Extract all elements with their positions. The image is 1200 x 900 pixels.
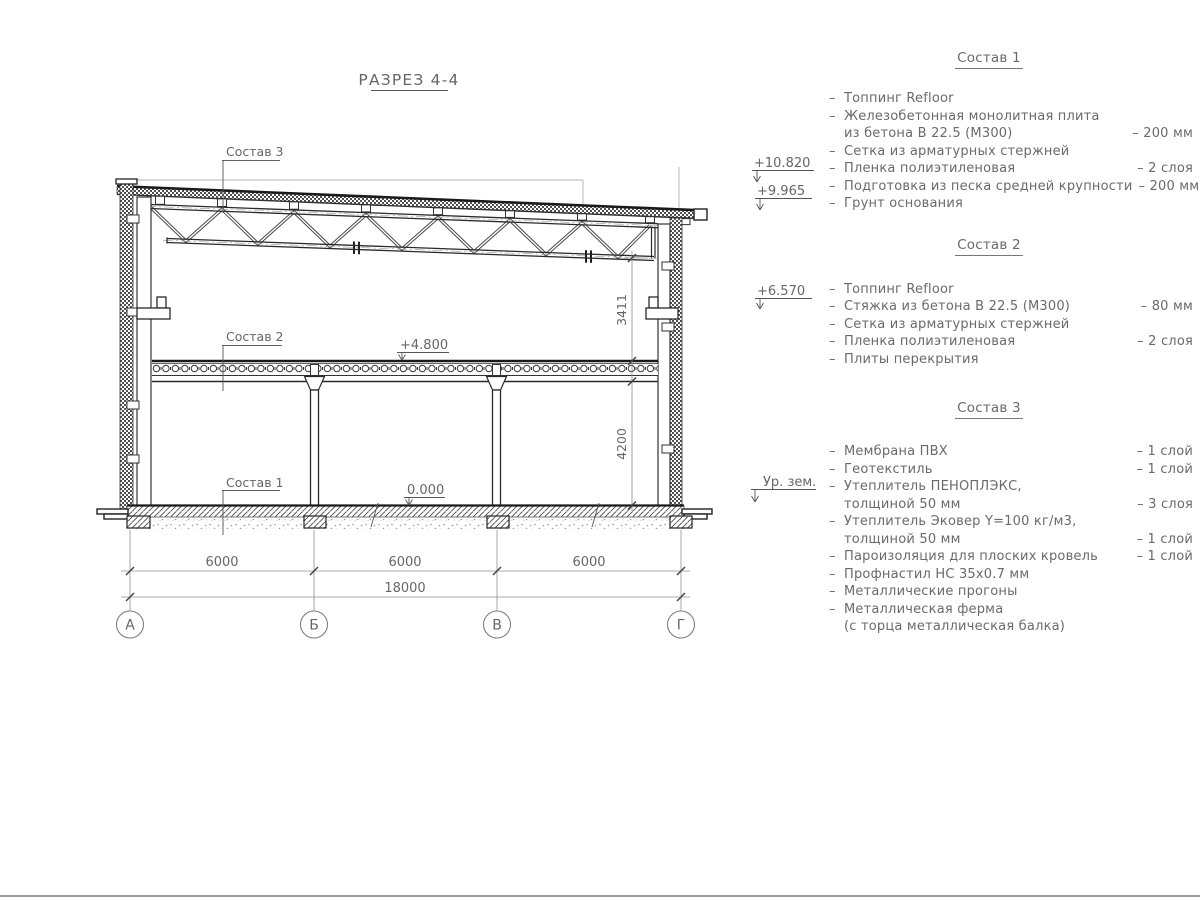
spec-item: –толщиной 50 мм– 3 слоя bbox=[829, 496, 1193, 514]
elevation-parapet: +10.820 bbox=[754, 156, 810, 171]
elevation-ground-label: Ур. зем. bbox=[763, 475, 816, 490]
hollow-core-slabs bbox=[152, 364, 658, 375]
dim-bay2: 6000 bbox=[388, 555, 421, 570]
drawing-title: РАЗРЕЗ 4-4 bbox=[358, 71, 459, 91]
right-bracket-arm bbox=[646, 308, 678, 319]
spec-item: –Металлические прогоны bbox=[829, 583, 1193, 601]
axis-label-b: Б bbox=[309, 618, 319, 634]
elevation-roof-edge: +9.965 bbox=[757, 184, 805, 199]
left-column bbox=[137, 197, 151, 511]
column-capital bbox=[487, 377, 507, 391]
dim-bay1: 6000 bbox=[205, 555, 238, 570]
spec-item: –Грунт основания bbox=[829, 195, 1193, 213]
spec-item: –Пленка полиэтиленовая– 2 слоя bbox=[829, 160, 1193, 178]
composition-callouts: Состав 3 Состав 2 Состав 1 bbox=[222, 144, 283, 535]
spec-item: –Мембрана ПВХ– 1 слой bbox=[829, 443, 1193, 461]
ground-floor bbox=[97, 503, 712, 529]
section-title-text: РАЗРЕЗ 4-4 bbox=[358, 71, 459, 89]
right-wall bbox=[658, 218, 682, 511]
parapet-cap bbox=[116, 179, 137, 184]
callout-sostav2: Состав 2 bbox=[226, 329, 283, 344]
spec-section-sostav3: Состав 3 –Мембрана ПВХ– 1 слой –Геотекст… bbox=[829, 401, 1193, 636]
spec-item: –Утеплитель ПЕНОПЛЭКС, bbox=[829, 478, 1193, 496]
spec-item: –Сетка из арматурных стержней bbox=[829, 143, 1193, 161]
spec-item: –(с торца металлическая балка) bbox=[829, 618, 1193, 636]
dim-bay3: 6000 bbox=[572, 555, 605, 570]
column-v bbox=[493, 390, 501, 516]
right-bracket-stub bbox=[649, 297, 658, 308]
left-bracket-arm bbox=[137, 308, 170, 319]
spec-item: –Утеплитель Эковер Y=100 кг/м3, bbox=[829, 513, 1193, 531]
sheet-bottom-edge bbox=[0, 895, 1200, 897]
ground-slab bbox=[127, 506, 684, 517]
spec-item: –Топпинг Refloor bbox=[829, 90, 1193, 108]
drawing-sheet: РАЗРЕЗ 4-4 bbox=[0, 0, 1200, 900]
spec-item: –Железобетонная монолитная плита bbox=[829, 108, 1193, 126]
axis-label-g: Г bbox=[677, 618, 686, 634]
callout-sostav3: Состав 3 bbox=[226, 144, 283, 159]
column-capital bbox=[305, 377, 325, 391]
spec-item: –Пароизоляция для плоских кровель– 1 сло… bbox=[829, 548, 1193, 566]
truss-end-post bbox=[652, 227, 656, 259]
spec-heading: Состав 2 bbox=[829, 238, 1193, 253]
axis-label-v: В bbox=[492, 618, 502, 634]
spec-item: –Пленка полиэтиленовая– 2 слоя bbox=[829, 333, 1193, 351]
spec-item: –толщиной 50 мм– 1 слой bbox=[829, 531, 1193, 549]
column-b bbox=[311, 390, 319, 516]
dim-total: 18000 bbox=[384, 581, 425, 596]
crane-brackets bbox=[137, 297, 678, 319]
interior-columns bbox=[305, 365, 507, 517]
spec-heading: Состав 1 bbox=[829, 51, 1193, 66]
left-wall bbox=[116, 179, 151, 511]
callout-sostav1: Состав 1 bbox=[226, 475, 283, 490]
dim-floor-clearance: 4200 bbox=[614, 428, 629, 460]
spec-heading: Состав 3 bbox=[829, 401, 1193, 416]
level-arrow-icon bbox=[406, 498, 413, 506]
spec-section-sostav2: Состав 2 –Топпинг Refloor –Стяжка из бет… bbox=[829, 238, 1193, 369]
axis-label-a: А bbox=[125, 618, 135, 634]
level-arrow-icon bbox=[757, 199, 764, 211]
bottom-dimensions: 6000 6000 6000 18000 А Б В Г bbox=[117, 530, 695, 638]
elevation-crane: +6.570 bbox=[757, 284, 805, 299]
spec-item: –Профнастил НС 35х0.7 мм bbox=[829, 566, 1193, 584]
level-arrow-icon bbox=[754, 171, 761, 183]
spec-item: –Сетка из арматурных стержней bbox=[829, 316, 1193, 334]
spec-item: –Подготовка из песка средней крупности– … bbox=[829, 178, 1193, 196]
axis-extension-lines bbox=[130, 530, 681, 611]
spec-item: –из бетона В 22.5 (М300)– 200 мм bbox=[829, 125, 1193, 143]
elevation-zero: 0.000 bbox=[407, 483, 444, 498]
level-arrow-icon bbox=[399, 353, 406, 361]
level-arrow-icon bbox=[752, 490, 759, 503]
sand-preparation-layer bbox=[127, 517, 684, 529]
specifications-panel: Состав 1 –Топпинг Refloor –Железобетонна… bbox=[829, 51, 1193, 636]
mezzanine-floor bbox=[152, 361, 658, 382]
dim-truss-clearance: 3411 bbox=[614, 294, 629, 326]
roof-insulation-layer bbox=[117, 187, 695, 218]
elevation-floor: +4.800 bbox=[400, 338, 448, 353]
spec-item: –Плиты перекрытия bbox=[829, 351, 1193, 369]
spec-item: –Металлическая ферма bbox=[829, 601, 1193, 619]
spec-item: –Топпинг Refloor bbox=[829, 281, 1193, 299]
left-bracket-stub bbox=[157, 297, 166, 308]
level-arrow-icon bbox=[757, 299, 764, 310]
axis-bubbles: А Б В Г bbox=[117, 611, 695, 638]
spec-item: –Стяжка из бетона В 22.5 (М300)– 80 мм bbox=[829, 298, 1193, 316]
spec-section-sostav1: Состав 1 –Топпинг Refloor –Железобетонна… bbox=[829, 51, 1193, 213]
spec-item: –Геотекстиль– 1 слой bbox=[829, 461, 1193, 479]
roof-edge-plate bbox=[694, 209, 707, 220]
